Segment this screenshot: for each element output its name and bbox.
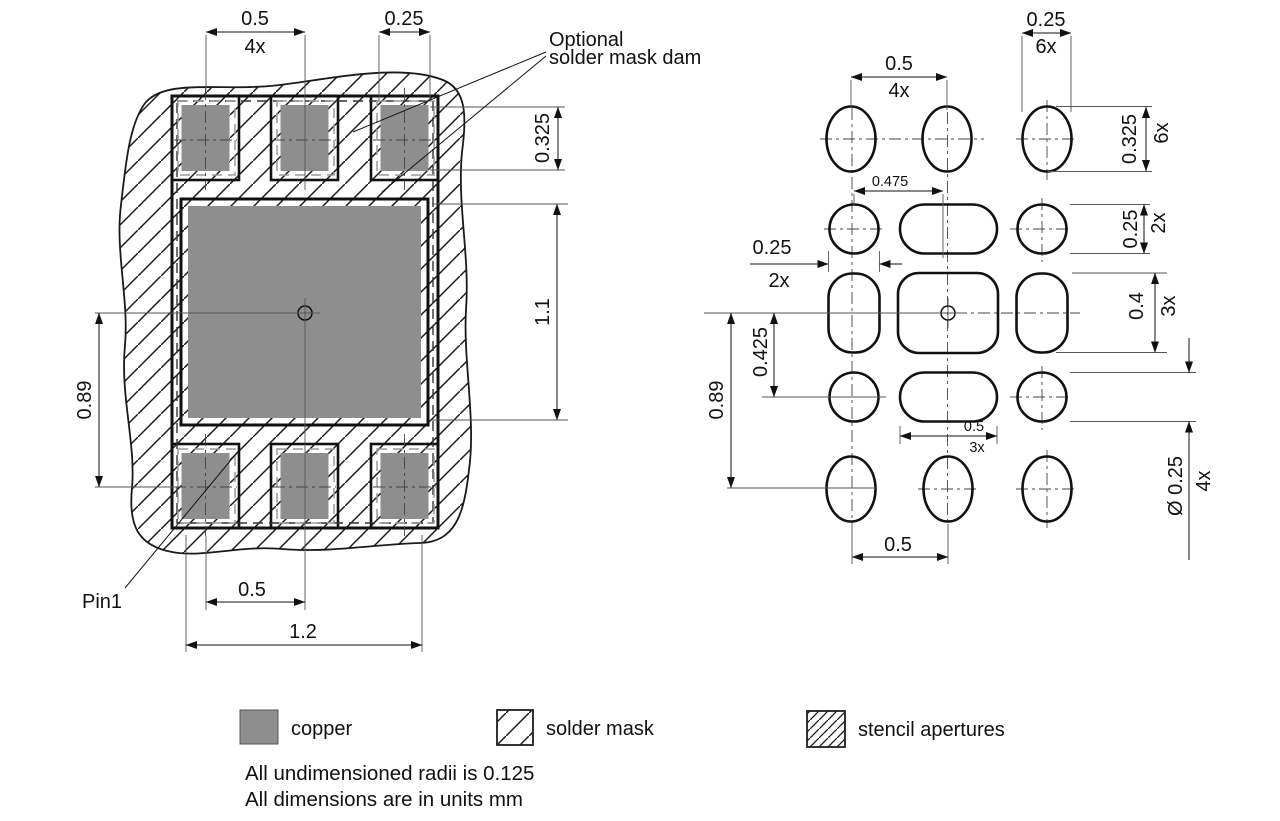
dim-pill-height-value: 0.25 [1120,210,1142,249]
stencil-aperture-pill [900,373,997,422]
dim-oval-height-value: 0.325 [1119,114,1141,164]
dim-oval-width-count: 6x [1035,36,1056,58]
dim-stencil-pitch-top-value: 0.5 [885,53,913,75]
note-units: All dimensions are in units mm [245,788,523,811]
dim-corner-dia-value: Ø 0.25 [1165,456,1187,516]
dim-stencil-pitch-top-count: 4x [888,80,909,102]
legend-swatch-copper [240,710,278,744]
legend-label-stencil: stencil apertures [858,719,1005,741]
dim-pad-width-value: 0.25 [385,8,424,30]
dim-top-pitch-value: 0.5 [241,8,269,30]
legend-swatch-stencil [807,711,845,747]
stencil-aperture-pill [900,205,997,254]
dim-oval-width-value: 0.25 [1027,9,1066,31]
dim-mid-height-count: 3x [1158,295,1180,316]
dim-stencil-pitch-bottom-value: 0.5 [884,534,912,556]
dim-row-span-value: 0.89 [74,381,96,420]
pin1-label: Pin1 [82,591,122,613]
legend-label-copper: copper [291,718,352,740]
note-radii: All undimensioned radii is 0.125 [245,762,534,785]
dim-side-width-count: 2x [768,270,789,292]
copper-pad [281,105,329,171]
stencil-apertures [827,107,1072,522]
dim-mid-height-value: 0.4 [1126,292,1148,320]
dim-corner-dia-count: 4x [1193,470,1215,491]
land-pattern-view: 0.5 4x 0.25 0.325 1.1 0.89 0.5 1.2 Pin1 … [74,8,701,652]
dim-pill-height-count: 2x [1148,212,1170,233]
dim-center-offset-value: 0.475 [872,174,908,190]
dam-note-line2: solder mask dam [549,47,701,69]
center-copper-pad [188,206,421,418]
dim-opening-height-value: 0.325 [532,113,554,163]
dim-center-height-value: 1.1 [532,298,554,326]
legend-label-solder-mask: solder mask [546,718,655,740]
dim-bottom-pitch-value: 0.5 [238,579,266,601]
dim-overall-width-value: 1.2 [289,621,317,643]
dim-top-pitch-count: 4x [244,36,265,58]
dim-pill-width-value: 0.5 [964,419,984,435]
stencil-centerlines [820,100,1080,528]
dim-side-width-value: 0.25 [753,237,792,259]
stencil-aperture-oval [827,457,876,522]
dim-pill-width-count: 3x [969,440,985,456]
dim-stencil-row-span-value: 0.89 [706,381,728,420]
dim-oval-height-count: 6x [1151,122,1173,143]
copper-pads [178,101,434,523]
pcb-land-pattern-drawing: 0.5 4x 0.25 0.325 1.1 0.89 0.5 1.2 Pin1 … [0,0,1280,821]
dim-row-offset-value: 0.425 [750,327,772,377]
drawing-notes: All undimensioned radii is 0.125 All dim… [245,762,534,811]
drawing-canvas: 0.5 4x 0.25 0.325 1.1 0.89 0.5 1.2 Pin1 … [0,0,1280,821]
copper-pad [281,453,329,519]
legend: copper solder mask stencil apertures [240,710,1005,747]
legend-swatch-solder-mask [497,710,533,745]
stencil-view: 0.5 4x 0.25 6x 0.325 6x 0.475 0.25 2x 0.… [704,9,1215,564]
